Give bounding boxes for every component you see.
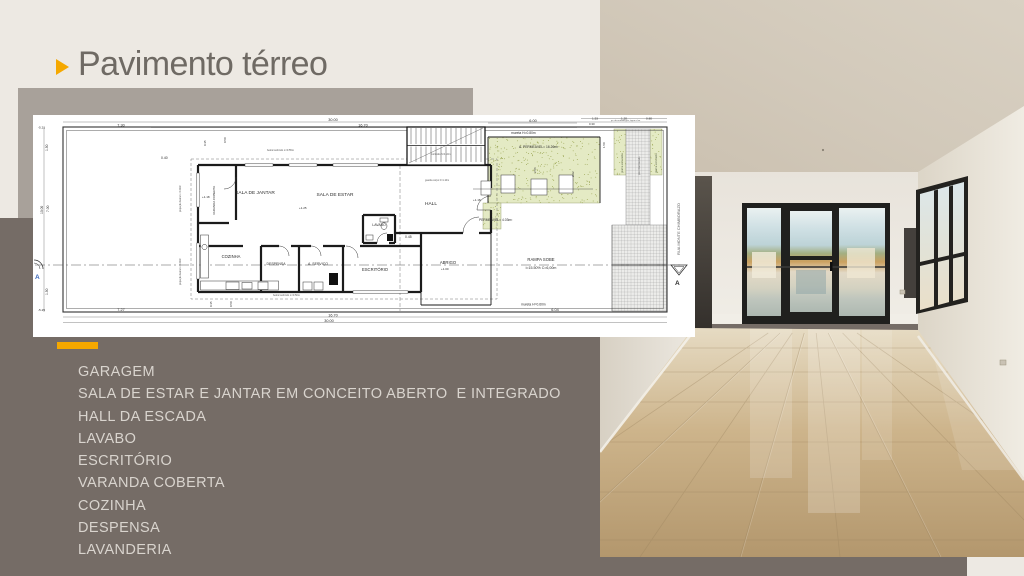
plan-label: mureta H=0.60m [521, 303, 546, 307]
plan-label: A. PERMEÁVEL= 16.26m² [519, 145, 559, 149]
plan-label: mureta H=0.80m [511, 131, 536, 135]
plan-label: 1.50 [45, 144, 49, 151]
plan-label: -5.21 [38, 126, 45, 130]
plan-label: beiral subindo L=0.50m [273, 293, 300, 297]
plan-label: projeção beiral L=0.40m [179, 258, 182, 285]
plan-label: 0.35 [209, 301, 213, 307]
plan-label: 7.27 [117, 308, 124, 312]
plan-windows [197, 164, 408, 293]
plan-label: -5.25 [38, 308, 45, 312]
photo-glass-doors [742, 203, 890, 324]
room-list-item: LAVANDERIA [78, 539, 561, 561]
plan-label: guarda corpo h=1.10m [425, 179, 449, 182]
plan-label: 2.56 [533, 167, 537, 173]
photo-stone-column [692, 176, 712, 333]
slide: SALA DE JANTARSALA DE ESTARHALLLAVABOCOZ… [0, 0, 1024, 576]
plan-label: corrimão h=0.10m [431, 153, 450, 156]
photo-ceiling-fixture [822, 149, 824, 151]
plan-label: 1.50 [602, 142, 606, 148]
plan-label: grama esmeralda [621, 153, 624, 173]
room-list: GARAGEMSALA DE ESTAR E JANTAR EM CONCEIT… [78, 361, 561, 562]
plan-label: +1.18 [202, 195, 210, 199]
plan-label: 0.35 [203, 140, 207, 146]
floor-plan: SALA DE JANTARSALA DE ESTARHALLLAVABOCOZ… [33, 115, 695, 337]
accent-bar [57, 342, 98, 349]
plan-label: ESCRITÓRIO [362, 267, 389, 272]
plan-label: LAVABO [372, 223, 386, 227]
plan-label: COZINHA [222, 254, 241, 259]
plan-label: A [35, 274, 40, 281]
plan-label: 0.30 [589, 122, 595, 126]
room-list-item: LAVABO [78, 428, 561, 450]
plan-label: 1.50 [45, 288, 49, 295]
plan-label: 2.22 [571, 171, 575, 177]
plan-label: VARANDA COBERTA [212, 186, 216, 215]
room-list-item: ESCRITÓRIO [78, 450, 561, 472]
room-list-item: GARAGEM [78, 361, 561, 383]
plan-label: 0.40 [161, 156, 168, 160]
room-list-item: VARANDA COBERTA [78, 472, 561, 494]
plan-label: +1.25 [299, 206, 307, 210]
plan-label: 10.00 [40, 206, 44, 214]
plan-label: SALA DE JANTAR [235, 190, 275, 196]
plan-label: HALL [425, 201, 437, 207]
plan-label: 0.80 [646, 117, 652, 121]
room-list-item: HALL DA ESCADA [78, 406, 561, 428]
plan-label: SALA DE ESTAR [317, 192, 355, 198]
plan-label: RUA MONTE CHIMBORAZO [676, 203, 681, 255]
plan-label: i=15.50% C=6,00m [526, 266, 557, 270]
plan-label: piso intertravado [638, 156, 641, 175]
plan-section-marker-left [34, 260, 43, 269]
plan-walls [198, 165, 491, 292]
floor-plan-canvas: SALA DE JANTARSALA DE ESTARHALLLAVABOCOZ… [33, 115, 695, 337]
plan-stairs [407, 127, 485, 165]
plan-label: +1.18 [473, 198, 481, 202]
plan-label: +1.00 [441, 267, 449, 271]
plan-label: 6.00 [529, 119, 536, 123]
plan-label: pv. de entrada gás, água e luz [611, 119, 640, 122]
plan-shafts [329, 234, 393, 285]
plan-label: ABRIGO [440, 260, 457, 265]
photo-window [916, 176, 968, 314]
plan-label: 7.30 [117, 124, 124, 128]
plan-label: 7.00 [46, 205, 50, 212]
plan-label: 30.00 [324, 319, 334, 323]
photo-corner-niche [904, 228, 918, 298]
plan-label: projeção beiral L=0.40m [179, 185, 182, 212]
photo-socket [900, 290, 905, 294]
plan-section-marker-right [671, 265, 687, 275]
plan-label: 30.00 [328, 118, 338, 122]
room-list-item: COZINHA [78, 495, 561, 517]
plan-label: 6.04 [551, 308, 558, 312]
plan-label: RAMPA SOBE [527, 257, 554, 262]
photo-socket [1000, 360, 1006, 365]
plan-label: 0.45 [405, 235, 412, 239]
title-arrow-icon [56, 59, 69, 75]
title-row: Pavimento térreo [56, 46, 327, 83]
plan-label: DESPENSA [266, 262, 286, 266]
plan-label: 0.50 [229, 301, 233, 307]
plan-label: A [675, 280, 680, 287]
room-list-item: SALA DE ESTAR E JANTAR EM CONCEITO ABERT… [78, 383, 561, 405]
plan-label: beiral subindo L=0.55m [267, 148, 294, 152]
plan-label: 16.70 [328, 314, 338, 318]
plan-label: grama esmeralda [655, 153, 658, 173]
plan-label: PERMEÁVEL= 4.03m² [479, 218, 513, 222]
plan-label: 1.53 [592, 117, 598, 121]
page-title: Pavimento térreo [78, 46, 327, 83]
plan-label: 0.50 [223, 137, 227, 143]
plan-label: 16.70 [358, 124, 368, 128]
room-list-item: DESPENSA [78, 517, 561, 539]
plan-label: A. SERVIÇO [308, 262, 328, 266]
